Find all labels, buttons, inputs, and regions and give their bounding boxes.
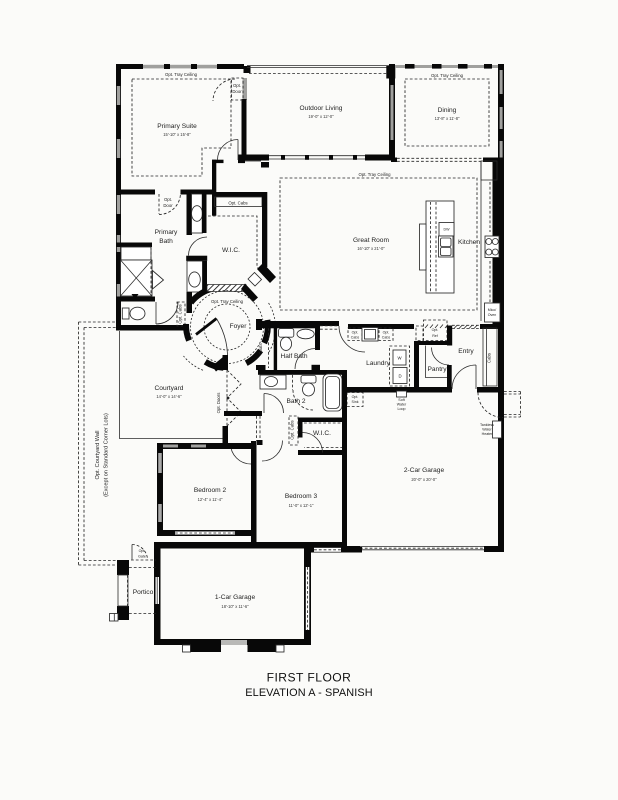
svg-text:Loop: Loop xyxy=(398,407,406,411)
svg-text:16'-10" x 21'-0": 16'-10" x 21'-0" xyxy=(357,246,385,251)
svg-text:Cabs: Cabs xyxy=(351,336,360,340)
svg-text:W.I.C.: W.I.C. xyxy=(222,247,240,254)
svg-text:Great Room: Great Room xyxy=(353,237,389,244)
svg-text:Pantry: Pantry xyxy=(427,366,447,373)
svg-text:Door: Door xyxy=(232,89,242,94)
svg-text:Water: Water xyxy=(482,428,492,432)
svg-text:Opt. Tray Ceiling: Opt. Tray Ceiling xyxy=(359,172,392,177)
svg-text:2-Car Garage: 2-Car Garage xyxy=(404,467,445,474)
svg-text:15'-10" x 15'-8": 15'-10" x 15'-8" xyxy=(163,132,191,137)
svg-text:18'-10" x 11'-6": 18'-10" x 11'-6" xyxy=(221,604,249,609)
svg-text:19'-0" x 12'-0": 19'-0" x 12'-0" xyxy=(308,114,334,119)
svg-text:Opt.: Opt. xyxy=(139,549,146,553)
svg-text:D: D xyxy=(398,374,401,379)
svg-text:Courtyard: Courtyard xyxy=(155,385,184,392)
svg-text:Bedroom 2: Bedroom 2 xyxy=(194,487,227,494)
svg-text:Bath: Bath xyxy=(159,238,173,245)
svg-text:Opt.: Opt. xyxy=(164,197,172,202)
svg-text:Heater: Heater xyxy=(482,432,494,436)
svg-text:W.I.C.: W.I.C. xyxy=(313,430,331,437)
svg-text:Cabs: Cabs xyxy=(382,336,391,340)
svg-text:DW: DW xyxy=(444,228,451,232)
svg-text:Oven: Oven xyxy=(488,313,497,317)
svg-text:(Except on Standard Corner Lot: (Except on Standard Corner Lots) xyxy=(104,413,110,497)
svg-text:Dining: Dining xyxy=(438,107,457,114)
svg-text:Laundry: Laundry xyxy=(366,360,391,367)
svg-text:Bedroom 3: Bedroom 3 xyxy=(285,493,318,500)
svg-text:Opt. Courtyard Wall: Opt. Courtyard Wall xyxy=(95,431,101,480)
svg-text:20'-0" x 20'-0": 20'-0" x 20'-0" xyxy=(411,477,437,482)
svg-text:13'-8" x 11'-8": 13'-8" x 11'-8" xyxy=(435,116,460,121)
svg-text:Coats: Coats xyxy=(258,343,263,354)
svg-text:Primary: Primary xyxy=(155,229,178,236)
svg-text:Foyer: Foyer xyxy=(230,323,248,330)
svg-text:Water: Water xyxy=(397,403,407,407)
svg-text:Outdoor Living: Outdoor Living xyxy=(300,105,343,112)
svg-text:Opt. Tray Ceiling: Opt. Tray Ceiling xyxy=(431,73,464,78)
svg-text:11'-0" x 12'-1": 11'-0" x 12'-1" xyxy=(289,503,314,508)
svg-text:1-Car Garage: 1-Car Garage xyxy=(215,594,256,601)
svg-text:Entry: Entry xyxy=(458,348,474,355)
svg-text:ELEVATION A - SPANISH: ELEVATION A - SPANISH xyxy=(245,687,372,699)
svg-text:Cabs: Cabs xyxy=(487,353,492,363)
svg-text:Opt.: Opt. xyxy=(233,83,241,88)
svg-text:FIRST FLOOR: FIRST FLOOR xyxy=(267,671,352,685)
svg-text:14'-0" x 14'-6": 14'-0" x 14'-6" xyxy=(156,394,182,399)
svg-text:Opt.: Opt. xyxy=(432,328,439,332)
svg-text:Half Bath: Half Bath xyxy=(280,353,307,360)
svg-text:Kitchen: Kitchen xyxy=(458,239,480,246)
svg-text:Opt. Cabs: Opt. Cabs xyxy=(228,201,247,206)
svg-text:Opt.: Opt. xyxy=(383,331,390,335)
svg-text:Sink: Sink xyxy=(352,400,359,404)
svg-text:Mico/: Mico/ xyxy=(488,308,497,312)
svg-text:Portico: Portico xyxy=(133,589,154,596)
svg-text:Opt.: Opt. xyxy=(352,395,359,399)
svg-text:Opt.: Opt. xyxy=(352,331,359,335)
svg-text:Gate: Gate xyxy=(138,555,146,559)
svg-text:Opt. Cabs: Opt. Cabs xyxy=(178,304,183,323)
svg-text:Soft: Soft xyxy=(398,398,404,402)
svg-text:Opt. Tray Ceiling: Opt. Tray Ceiling xyxy=(211,299,244,304)
svg-text:Door: Door xyxy=(163,203,173,208)
svg-text:Tankless: Tankless xyxy=(480,423,494,427)
svg-text:Ref: Ref xyxy=(432,334,438,338)
svg-text:Opt. Cabs: Opt. Cabs xyxy=(290,420,295,439)
svg-text:12'-4" x 11'-4": 12'-4" x 11'-4" xyxy=(198,497,223,502)
svg-text:Opt. Doors: Opt. Doors xyxy=(216,393,221,414)
svg-text:Opt. Tray Ceiling: Opt. Tray Ceiling xyxy=(165,72,198,77)
svg-text:Primary Suite: Primary Suite xyxy=(157,123,197,130)
